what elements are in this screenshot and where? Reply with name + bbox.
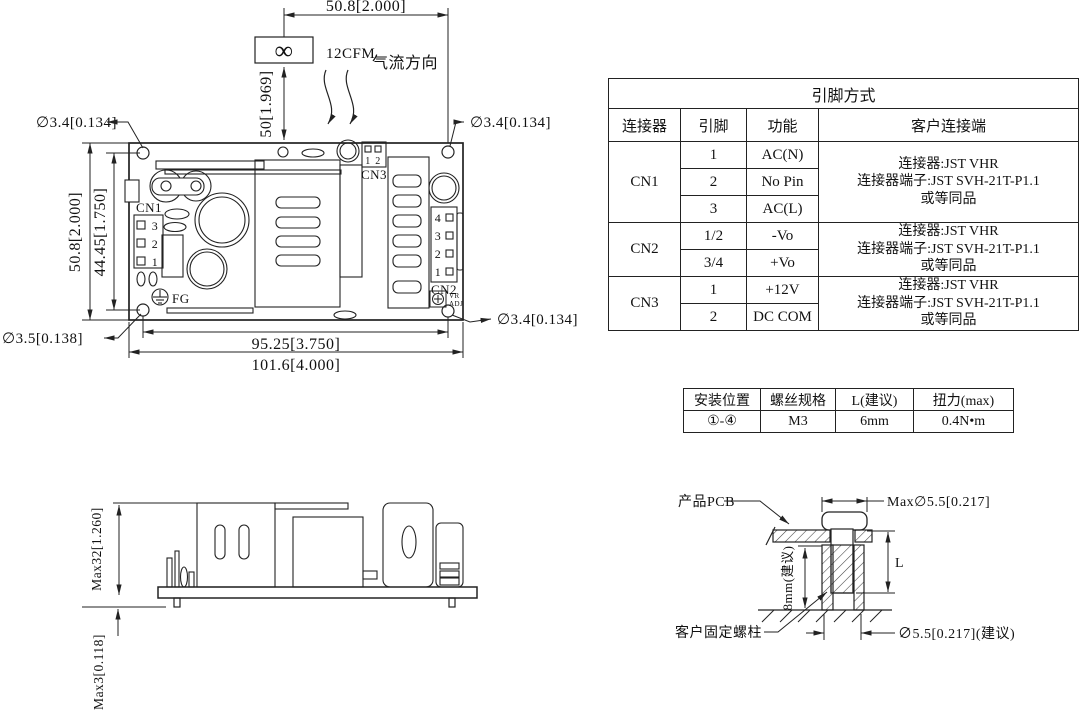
pin-cell: 2: [681, 304, 747, 331]
pin-cell: 3: [681, 196, 747, 223]
customer-line: 连接器:JST VHR: [819, 156, 1078, 174]
customer-line: 连接器端子:JST SVH-21T-P1.1: [819, 241, 1078, 259]
func-cell: No Pin: [747, 169, 819, 196]
fan-icon: ∞: [274, 36, 293, 65]
psu-side-view-drawing: Max32[1.260] Max3[0.118]: [82, 503, 477, 710]
hole-label-top-left: ∅3.4[0.134]: [36, 115, 117, 131]
pin-table-connector-cn1: CN1: [609, 142, 681, 223]
customer-line: 连接器端子:JST SVH-21T-P1.1: [819, 295, 1078, 313]
mount-value-screw: M3: [761, 411, 836, 433]
mount-value-torque: 0.4N•m: [914, 411, 1014, 433]
fg-ground-symbol: FG: [152, 289, 190, 306]
airflow-arrow: [346, 70, 353, 124]
hole-label-bottom-left: ∅3.5[0.138]: [2, 331, 83, 347]
cn3-pin-2: 2: [375, 156, 381, 167]
customer-line: 连接器端子:JST SVH-21T-P1.1: [819, 173, 1078, 191]
airflow-direction-label: 气流方向: [372, 54, 438, 72]
airflow-arrow: [324, 70, 331, 124]
customer-cell-cn1: 连接器:JST VHR 连接器端子:JST SVH-21T-P1.1 或等同品: [819, 142, 1079, 223]
cn2-pin-2: 2: [435, 247, 442, 261]
screw-head: [822, 512, 867, 530]
vr-adj-label-line2: ADJ: [449, 300, 463, 308]
dim-width-outer-label: 101.6[4.000]: [252, 357, 341, 374]
mount-header-torque: 扭力(max): [914, 389, 1014, 411]
dim-width-holes-label: 95.25[3.750]: [252, 336, 341, 353]
dim-length-label: L: [895, 556, 904, 571]
psu-top-view-drawing: ∞ 12CFM 气流方向 50.8[2.000] 50[1.969] ∅3.4[…: [2, 0, 578, 374]
dim-hole-label: ∅5.5[0.217](建议): [898, 626, 1015, 642]
customer-line: 连接器:JST VHR: [819, 277, 1078, 295]
mount-header-length: L(建议): [836, 389, 914, 411]
pin-table-header-connector: 连接器: [609, 109, 681, 142]
fan-cfm-label: 12CFM: [326, 46, 375, 62]
hole-label-bottom-right: ∅3.4[0.134]: [497, 312, 578, 328]
side-dim-pins-label: Max3[0.118]: [91, 634, 106, 710]
pin-table-header-customer: 客户连接端: [819, 109, 1079, 142]
dim-height-holes-label: 44.45[1.750]: [92, 188, 109, 277]
pin-cell: 1: [681, 142, 747, 169]
cn1-label: CN1: [136, 200, 162, 215]
pin-table-connector-cn3: CN3: [609, 277, 681, 331]
mount-value-position: ①-④: [684, 411, 761, 433]
mount-header-screw: 螺丝规格: [761, 389, 836, 411]
side-dim-height-label: Max32[1.260]: [89, 507, 104, 591]
dim-head-label: Max∅5.5[0.217]: [887, 495, 990, 510]
mount-value-length: 6mm: [836, 411, 914, 433]
mounting-detail-drawing: 产品PCB Max∅5.5[0.217]: [675, 494, 1015, 642]
func-cell: +12V: [747, 277, 819, 304]
cn1-pin-3: 3: [152, 219, 159, 233]
hole-label-top-right: ∅3.4[0.134]: [470, 115, 551, 131]
product-pcb-label: 产品PCB: [678, 494, 735, 510]
connector-cn1: CN1 3 2 1: [134, 200, 163, 269]
connector-cn3: 1 2 CN3: [361, 142, 387, 182]
dim-depth-label: 8mm(建议): [780, 546, 795, 611]
side-components: [167, 503, 463, 587]
customer-line: 或等同品: [819, 312, 1078, 330]
standoff-label: 客户固定螺柱: [675, 624, 762, 641]
pin-table-header-pin: 引脚: [681, 109, 747, 142]
pin-cell: 1: [681, 277, 747, 304]
func-cell: +Vo: [747, 250, 819, 277]
pin-table-header-function: 功能: [747, 109, 819, 142]
customer-line: 或等同品: [819, 191, 1078, 209]
cn3-label: CN3: [361, 167, 387, 182]
mounting-screw-table: 安装位置 螺丝规格 L(建议) 扭力(max) ①-④ M3 6mm 0.4N•…: [683, 388, 1014, 433]
customer-cell-cn2: 连接器:JST VHR 连接器端子:JST SVH-21T-P1.1 或等同品: [819, 223, 1079, 277]
pin-assignment-table: 引脚方式 连接器 引脚 功能 客户连接端 CN1 1 AC(N) 连接器:JST…: [608, 78, 1079, 331]
cn1-pin-2: 2: [152, 237, 159, 251]
pin-table-title: 引脚方式: [609, 79, 1079, 109]
mount-header-position: 安装位置: [684, 389, 761, 411]
pin-table-connector-cn2: CN2: [609, 223, 681, 277]
customer-line: 或等同品: [819, 258, 1078, 276]
cn2-pin-4: 4: [435, 211, 442, 225]
func-cell: AC(L): [747, 196, 819, 223]
pin-cell: 2: [681, 169, 747, 196]
connector-cn2: 4 3 2 1 CN2: [431, 207, 463, 297]
mounting-hole-top-right: [442, 146, 454, 158]
dim-height-outer-label: 50.8[2.000]: [67, 192, 84, 272]
cn2-pin-3: 3: [435, 229, 442, 243]
cn2-pin-1: 1: [435, 265, 442, 279]
fg-label: FG: [172, 291, 190, 306]
pin-cell: 1/2: [681, 223, 747, 250]
surface-hatch-ticks: [762, 610, 882, 622]
vr-adj-label-line1: VR: [449, 292, 460, 300]
customer-cell-cn3: 连接器:JST VHR 连接器端子:JST SVH-21T-P1.1 或等同品: [819, 277, 1079, 331]
dim-fan-height-label: 50[1.969]: [258, 70, 275, 137]
dim-fan-offset-label: 50.8[2.000]: [326, 0, 406, 15]
cn1-pin-1: 1: [152, 255, 159, 269]
customer-line: 连接器:JST VHR: [819, 223, 1078, 241]
func-cell: DC COM: [747, 304, 819, 331]
func-cell: -Vo: [747, 223, 819, 250]
func-cell: AC(N): [747, 142, 819, 169]
cn3-pin-1: 1: [365, 156, 371, 167]
side-pcb-board: [158, 587, 477, 598]
pin-cell: 3/4: [681, 250, 747, 277]
